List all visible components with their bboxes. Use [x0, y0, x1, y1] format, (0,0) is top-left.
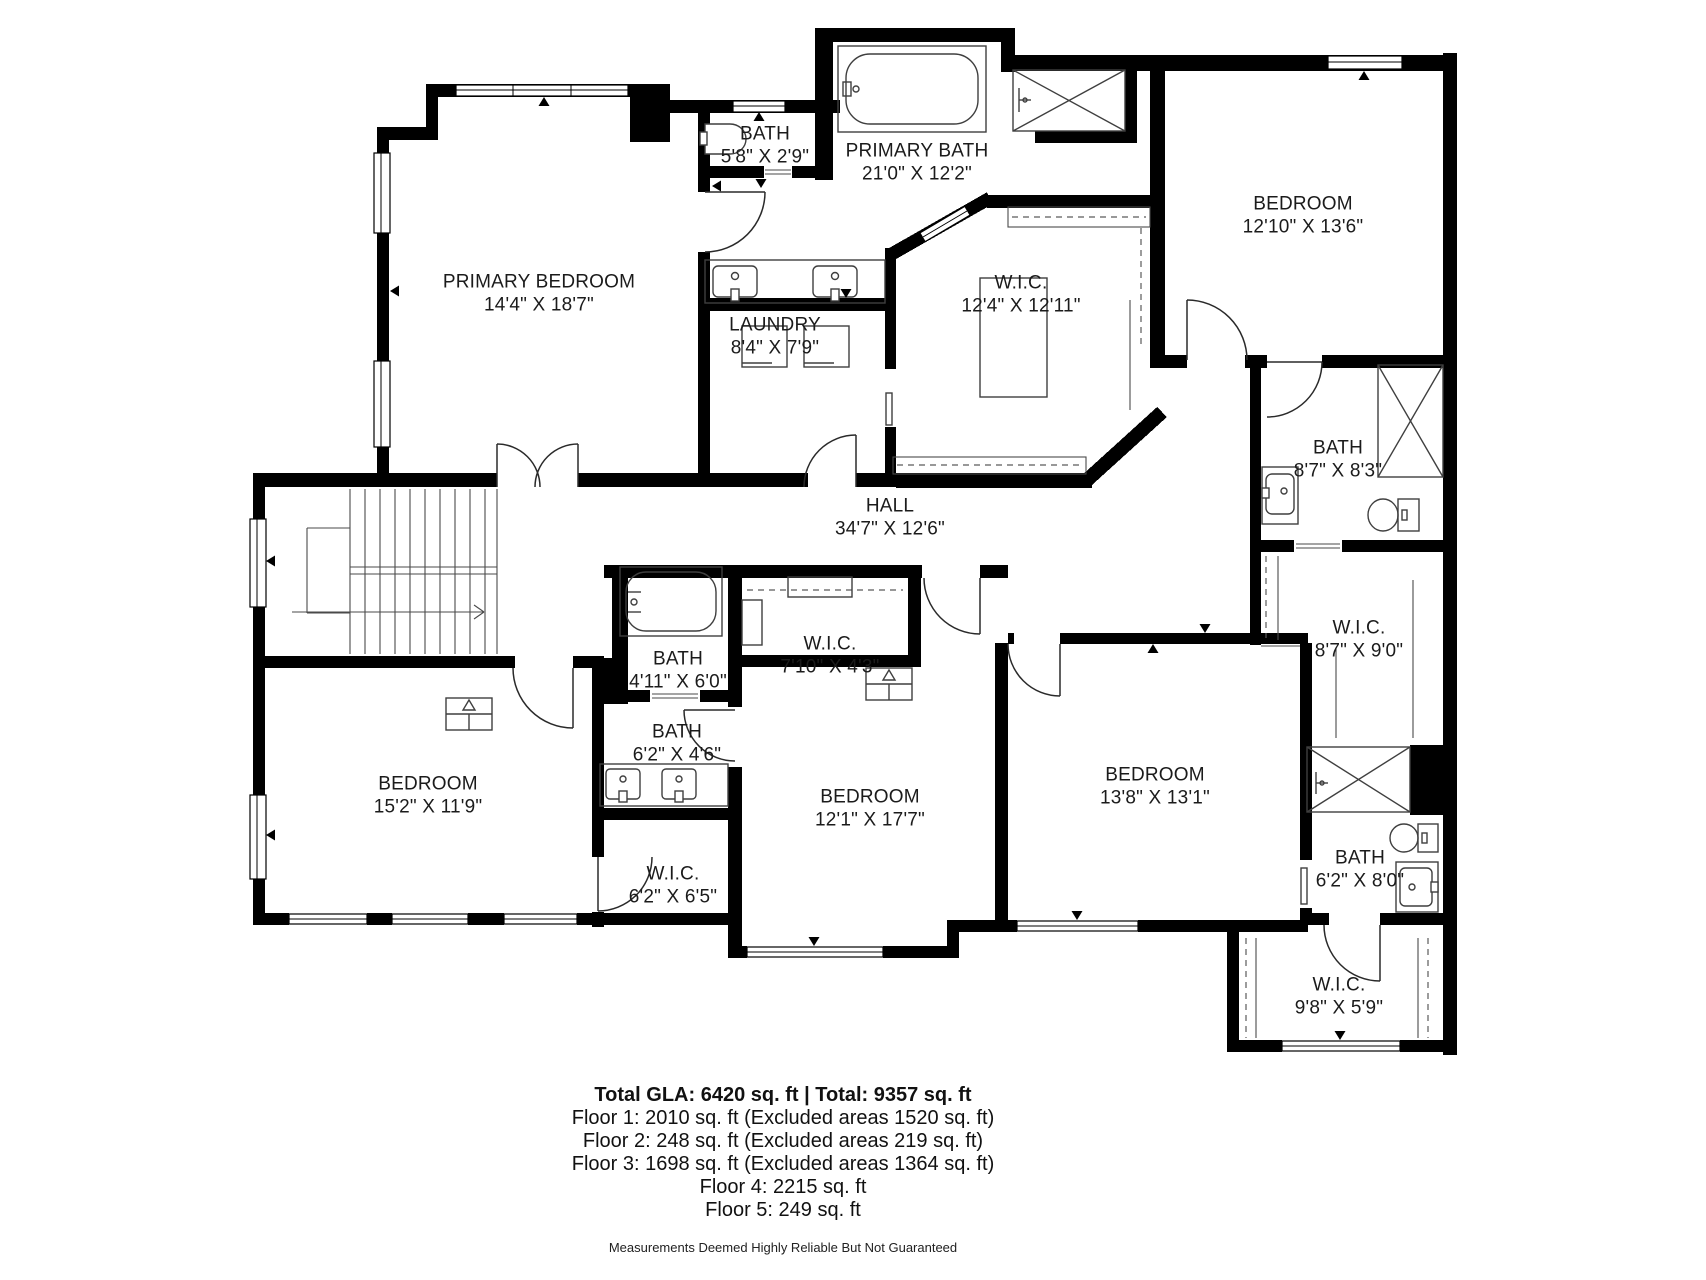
- room-name: BEDROOM: [1100, 765, 1210, 788]
- room-label-hall: HALL34'7" X 12'6": [835, 496, 945, 541]
- room-label-bath-right: BATH8'7" X 8'3": [1294, 438, 1382, 483]
- room-name: BEDROOM: [815, 787, 925, 810]
- room-label-bedroom-left: BEDROOM15'2" X 11'9": [374, 774, 483, 819]
- floor-line: Floor 3: 1698 sq. ft (Excluded areas 136…: [572, 1153, 994, 1176]
- room-label-bath-jack-jill: BATH6'2" X 4'6": [633, 722, 721, 767]
- room-name: LAUNDRY: [729, 315, 821, 338]
- floor-line: Floor 5: 249 sq. ft: [572, 1199, 994, 1222]
- floor-lines: Floor 1: 2010 sq. ft (Excluded areas 152…: [572, 1107, 994, 1222]
- room-name: W.I.C.: [1315, 618, 1403, 641]
- room-dims: 5'8" X 2'9": [721, 146, 809, 169]
- room-dims: 12'10" X 13'6": [1243, 216, 1364, 239]
- room-dims: 7'10" X 4'3": [780, 656, 879, 679]
- room-dims: 12'4" X 12'11": [961, 295, 1080, 318]
- room-label-primary-bath: PRIMARY BATH21'0" X 12'2": [846, 141, 989, 186]
- room-label-bedroom-middle: BEDROOM12'1" X 17'7": [815, 787, 925, 832]
- room-dims: 8'7" X 9'0": [1315, 640, 1403, 663]
- room-dims: 6'2" X 6'5": [629, 886, 717, 909]
- room-name: BATH: [721, 124, 809, 147]
- room-label-wic-bottom-right: W.I.C.9'8" X 5'9": [1295, 975, 1383, 1020]
- room-dims: 6'2" X 4'6": [633, 744, 721, 767]
- total-gla: Total GLA: 6420 sq. ft | Total: 9357 sq.…: [572, 1084, 994, 1107]
- room-name: BATH: [1294, 438, 1382, 461]
- room-name: W.I.C.: [1295, 975, 1383, 998]
- room-label-wic-primary: W.I.C.12'4" X 12'11": [961, 273, 1080, 318]
- room-label-bath-top: BATH5'8" X 2'9": [721, 124, 809, 169]
- disclaimer: Measurements Deemed Highly Reliable But …: [572, 1236, 994, 1259]
- room-dims: 34'7" X 12'6": [835, 518, 945, 541]
- room-name: W.I.C.: [629, 864, 717, 887]
- room-label-wic-left: W.I.C.6'2" X 6'5": [629, 864, 717, 909]
- room-name: BATH: [1316, 848, 1404, 871]
- room-name: BATH: [629, 649, 727, 672]
- floorplan-canvas: PRIMARY BEDROOM14'4" X 18'7"BATH5'8" X 2…: [0, 0, 1706, 1280]
- room-name: PRIMARY BATH: [846, 141, 989, 164]
- floor-line: Floor 1: 2010 sq. ft (Excluded areas 152…: [572, 1107, 994, 1130]
- room-label-bedroom-right: BEDROOM13'8" X 13'1": [1100, 765, 1210, 810]
- room-label-bath-small: BATH4'11" X 6'0": [629, 649, 727, 694]
- room-name: W.I.C.: [780, 634, 879, 657]
- room-label-bedroom-top-right: BEDROOM12'10" X 13'6": [1243, 194, 1364, 239]
- room-dims: 8'4" X 7'9": [729, 337, 821, 360]
- room-dims: 13'8" X 13'1": [1100, 787, 1210, 810]
- room-name: PRIMARY BEDROOM: [443, 272, 635, 295]
- room-name: BEDROOM: [374, 774, 483, 797]
- room-dims: 9'8" X 5'9": [1295, 997, 1383, 1020]
- room-label-wic-right: W.I.C.8'7" X 9'0": [1315, 618, 1403, 663]
- area-summary: Total GLA: 6420 sq. ft | Total: 9357 sq.…: [572, 1084, 994, 1259]
- room-dims: 21'0" X 12'2": [846, 163, 989, 186]
- room-label-bath-bottom-right: BATH6'2" X 8'0": [1316, 848, 1404, 893]
- floor-line: Floor 2: 248 sq. ft (Excluded areas 219 …: [572, 1130, 994, 1153]
- room-name: BATH: [633, 722, 721, 745]
- room-dims: 12'1" X 17'7": [815, 809, 925, 832]
- room-name: W.I.C.: [961, 273, 1080, 296]
- room-name: BEDROOM: [1243, 194, 1364, 217]
- room-dims: 4'11" X 6'0": [629, 671, 727, 694]
- floor-line: Floor 4: 2215 sq. ft: [572, 1176, 994, 1199]
- room-dims: 8'7" X 8'3": [1294, 460, 1382, 483]
- room-label-laundry: LAUNDRY8'4" X 7'9": [729, 315, 821, 360]
- room-dims: 6'2" X 8'0": [1316, 870, 1404, 893]
- room-dims: 14'4" X 18'7": [443, 294, 635, 317]
- room-label-wic-middle: W.I.C.7'10" X 4'3": [780, 634, 879, 679]
- room-name: HALL: [835, 496, 945, 519]
- room-dims: 15'2" X 11'9": [374, 796, 483, 819]
- room-label-primary-bedroom: PRIMARY BEDROOM14'4" X 18'7": [443, 272, 635, 317]
